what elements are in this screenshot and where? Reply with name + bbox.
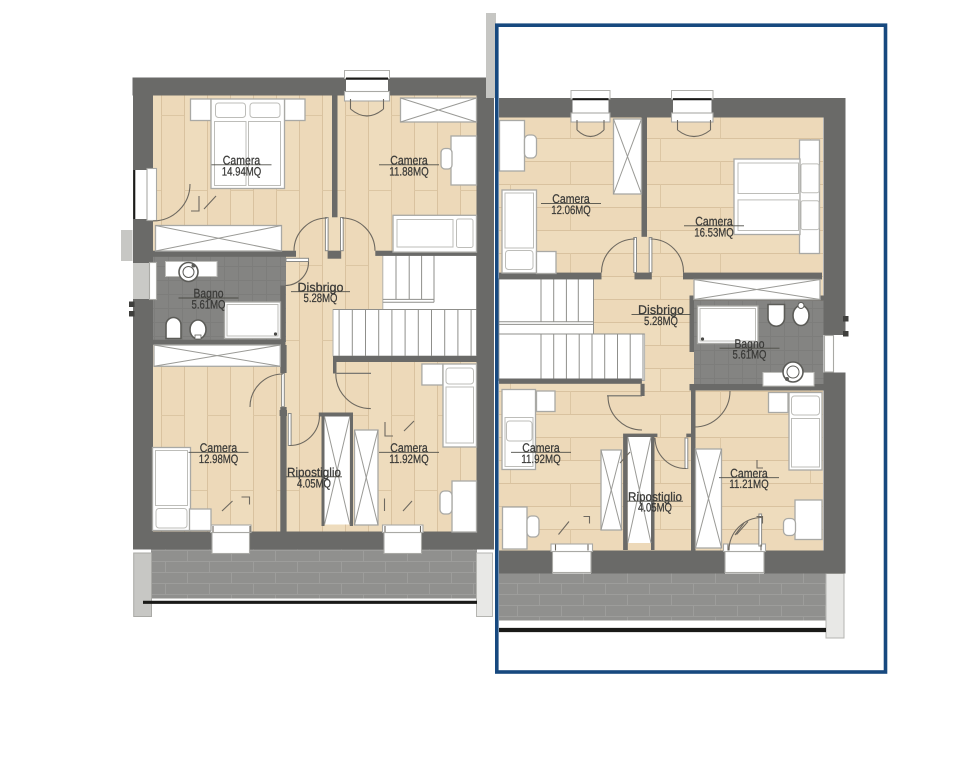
svg-text:12.06MQ: 12.06MQ — [551, 203, 591, 217]
svg-text:5.28MQ: 5.28MQ — [644, 314, 678, 328]
svg-text:11.88MQ: 11.88MQ — [389, 164, 429, 178]
svg-text:11.92MQ: 11.92MQ — [521, 452, 561, 466]
svg-text:16.53MQ: 16.53MQ — [694, 225, 734, 239]
svg-text:4.05MQ: 4.05MQ — [297, 476, 331, 490]
svg-text:5.61MQ: 5.61MQ — [192, 298, 226, 312]
svg-text:5.28MQ: 5.28MQ — [304, 291, 338, 305]
svg-text:11.21MQ: 11.21MQ — [729, 477, 769, 491]
svg-text:12.98MQ: 12.98MQ — [199, 452, 239, 466]
svg-text:14.94MQ: 14.94MQ — [222, 164, 262, 178]
svg-text:11.92MQ: 11.92MQ — [389, 452, 429, 466]
svg-text:5.61MQ: 5.61MQ — [733, 348, 767, 362]
svg-text:4.05MQ: 4.05MQ — [638, 501, 672, 515]
